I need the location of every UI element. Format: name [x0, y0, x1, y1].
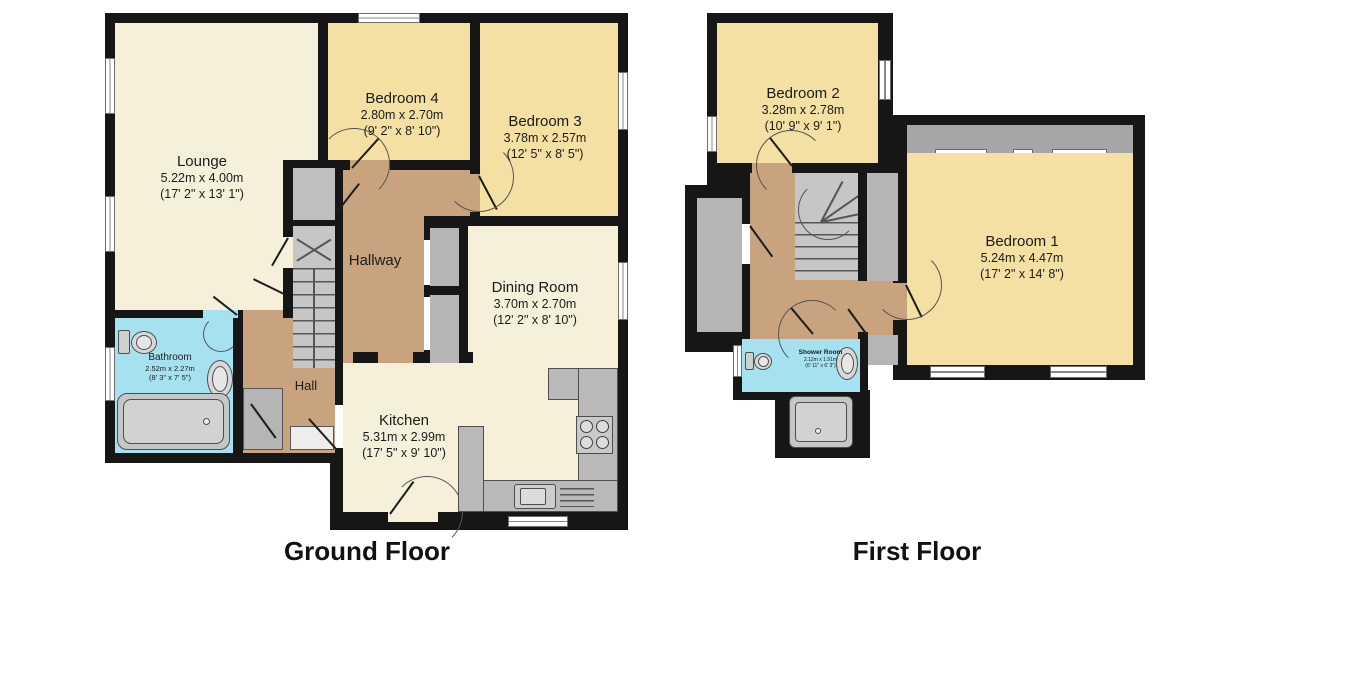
wall-segment — [858, 173, 867, 281]
floorplan-image: Lounge 5.22m x 4.00m (17' 2" x 13' 1") B… — [0, 0, 1352, 675]
first-floor-title: First Floor — [767, 536, 1067, 567]
landing-cupboard — [868, 335, 898, 365]
toilet-icon — [758, 356, 769, 367]
window — [707, 116, 717, 152]
cupboard-door-opening — [742, 224, 750, 264]
window — [1050, 366, 1107, 378]
door-swing-arc — [756, 130, 826, 200]
bedroom2-label: Bedroom 2 3.28m x 2.78m (10' 9" x 9' 1") — [723, 85, 883, 134]
first-floor-plan: Bedroom 2 3.28m x 2.78m (10' 9" x 9' 1")… — [0, 0, 1352, 675]
window — [733, 345, 742, 377]
shower-drain-icon — [815, 428, 821, 434]
window — [930, 366, 985, 378]
store-cupboard — [697, 198, 742, 332]
bedroom1-label: Bedroom 1 5.24m x 4.47m (17' 2" x 14' 8"… — [909, 233, 1135, 282]
toilet-icon — [745, 352, 754, 370]
shower-room-label: Shower Room 2.12m x 1.91m (6' 11" x 6' 3… — [778, 349, 863, 369]
wall-segment — [742, 198, 750, 332]
shower-tray-icon — [795, 402, 847, 442]
